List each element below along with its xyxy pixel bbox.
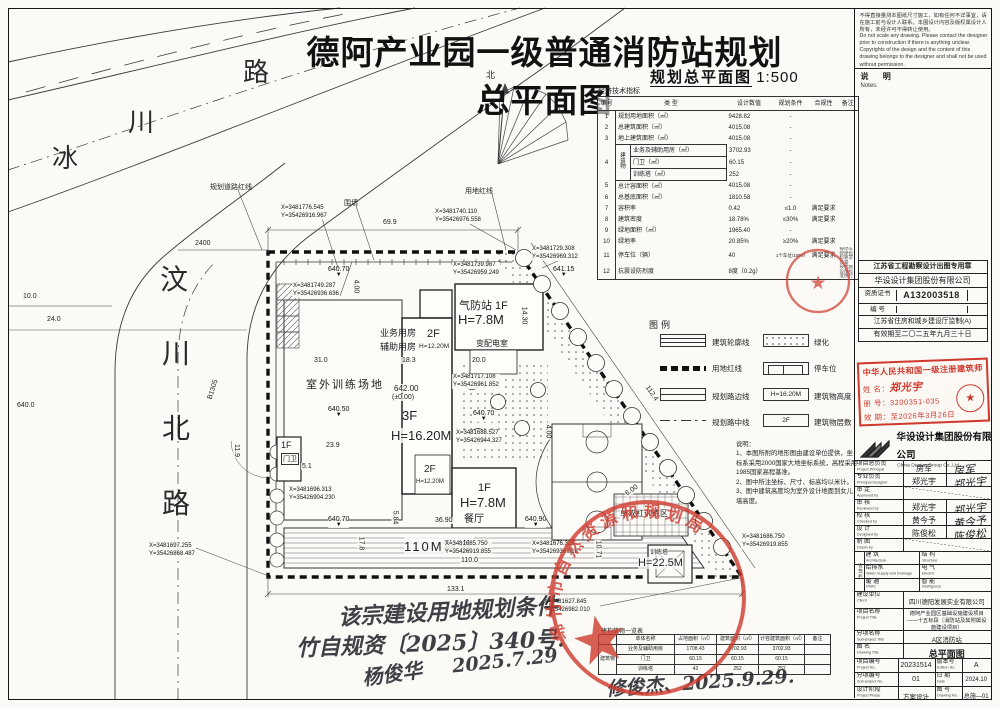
legend-swatch-green <box>763 334 809 347</box>
dim: 110.0 <box>460 557 479 564</box>
countersign-row: 给排水Water Supply and Drainage 电 气Electric <box>855 564 993 577</box>
coordinate-label: X=3481688.527Y=35426944.327 <box>455 430 503 445</box>
road-name-bingchuan: 川 <box>128 102 154 139</box>
company-name-zh: 华设设计集团股份有限公司 <box>897 432 992 461</box>
legend-label: 规划路中线 <box>712 417 750 428</box>
label-road-red-line: 规划道路红线 <box>210 182 252 192</box>
info-row-subproject: 分项名称Sub-project Title A区消防站 <box>855 630 993 643</box>
table-row: 单体名称占地面积（㎡）建筑面积（㎡）计容建筑面积（㎡）备注 <box>599 635 831 645</box>
legend-swatch-height: H=16.20M <box>763 388 809 401</box>
legend-swatch-floors: 2F <box>763 414 809 427</box>
label-tower-height: H=22.5M <box>638 557 683 569</box>
plan-caption: 规划总平面图 1:500 <box>650 66 799 87</box>
plan-notes-title: 说明： <box>736 440 858 449</box>
dim: 24.0 <box>46 316 62 323</box>
seal-line-1: 江苏省工程勘察设计出图专用章 <box>859 261 987 274</box>
arch-seal-icon: ★ <box>955 384 984 413</box>
registered-architect-stamp: 中华人民共和国一级注册建筑师 姓 名：郑光宇 册 号：3200351-035 效… <box>856 358 989 427</box>
label-2f-b-height: H=12.20M <box>416 479 444 485</box>
coordinate-label: X=3481697.255Y=35426868.487 <box>148 543 196 558</box>
coordinate-label: X=3481717.108Y=35426961.852 <box>452 374 500 389</box>
info-row-project: 项目名称Project Title 德阿产业园区基础设施建设项目——十五标段（消… <box>855 608 993 630</box>
legend-swatch-road-edge <box>660 388 706 401</box>
label-dining-height: H=7.8M <box>460 495 506 510</box>
col-header: 类 型 <box>616 97 727 111</box>
label-elev-main: 642.00 <box>394 384 418 393</box>
legend-label: 建筑物高度 <box>814 391 852 402</box>
dim: 4.00 <box>352 279 359 295</box>
legend-label: 规划路边线 <box>712 391 750 402</box>
dim: 23.9 <box>325 442 341 449</box>
label-tower: 训练塔 <box>650 547 668 556</box>
label-gas-station-height: H=7.8M <box>458 312 504 327</box>
elevation-marker: 641.15▼ <box>553 266 574 278</box>
road-name-wenchuan: 汶 <box>160 258 188 298</box>
plan-note-line: 3、图中建筑高度均为室外设计地面到女儿墙高度。 <box>736 487 858 506</box>
meta-row: 设计阶段Project Phase 方案设计 图 号Drawing No. 总施… <box>855 686 993 700</box>
label-2f-a: 2F <box>427 328 440 340</box>
personnel-row: 校 核Checked by 黄今予 黄今予 <box>855 512 993 525</box>
coordinate-label: X=3481740.110Y=35426976.558 <box>434 209 482 224</box>
info-row-drawing-title: 图 名Drawing Title 总平面图 <box>855 643 993 658</box>
table-row: 门卫60.1560.1560.15 <box>599 655 831 665</box>
meta-row: 分项编号Sub-project No. 01 日 期Date 2024.10 <box>855 672 993 686</box>
table-row: 5总计容面积（㎡）4015.08- <box>598 181 859 193</box>
dim: 11.9 <box>233 443 240 458</box>
label-site-red-line: 用地红线 <box>465 186 493 196</box>
personnel-row: 专业负责Principal Designer 郑光宇 郑光宇 <box>855 473 993 486</box>
road-name-wenchuan: 路 <box>162 482 190 522</box>
label-biz-room: 业务用房 <box>380 326 416 339</box>
personnel-row: 制 图Drawn by <box>855 538 993 551</box>
label-aux-room: 辅助用房 <box>380 340 416 353</box>
coordinate-label: X=3481676.326Y=35426936.918 <box>531 541 579 556</box>
legend-label: 用地红线 <box>712 363 742 374</box>
personnel-row: 项目总负责Project Principal 房军 房军 <box>855 460 993 473</box>
plan-notes: 说明： 1、本图所附的地形图由建设单位提供，坐标系采用2000国家大地坐标系统，… <box>736 440 858 506</box>
table-row: 8建筑密度18.78%≤30%满足要求 <box>598 214 859 225</box>
title-block: 不得直接量测本图纸尺寸施工，如有任何不详事宜，请在施工前与设计人联系。本图设计内… <box>854 8 993 698</box>
elevation-marker: 640.50▼ <box>328 406 349 418</box>
label-transformer: 变配电室 <box>476 338 508 349</box>
legend-swatch-road-center <box>660 420 706 421</box>
elevation-marker: 640.70▼ <box>328 516 349 528</box>
dim: 36.90 <box>434 517 454 524</box>
label-gas-station: 气防站 1F <box>459 297 508 313</box>
issue-seal-box: 江苏省工程勘察设计出图专用章 华设设计集团股份有限公司 资质证书A1320035… <box>858 260 988 342</box>
meta-row: 项目编号Project No. 20231514 版本号Edition No. … <box>855 658 993 672</box>
table-row: 11停车位（辆）401个车位/100㎡满足要求按停车配建指标要求设置 <box>598 247 859 265</box>
personnel-row: 设 计Designed by 陈俊松 陈俊松 <box>855 525 993 538</box>
disclaimer-en: Do not scale any drawing. Please contact… <box>855 30 993 69</box>
elevation-marker: 640.70▼ <box>473 410 494 422</box>
label-gate-floors: 1F <box>281 440 292 450</box>
table-row: 7容积率0.42≤1.0满足要求 <box>598 203 859 214</box>
label-3f: 3F <box>402 408 417 423</box>
plan-caption-text: 规划总平面图 <box>650 69 752 87</box>
plan-note-line: 1、本图所附的地形图由建设单位提供，坐标系采用2000国家大地坐标系统，高程采用… <box>736 449 858 477</box>
label-2f-a-height: H=12.20M <box>419 343 449 350</box>
dim: 69.9 <box>382 219 398 226</box>
dim: 5.1 <box>301 463 313 470</box>
legend-label: 建筑物层数 <box>814 417 852 428</box>
label-fence: 围墙 <box>344 198 358 208</box>
dim: 18.3 <box>401 357 417 364</box>
coordinate-label: X=3481739.987Y=35426959.249 <box>452 262 500 277</box>
coordinate-label: X=3481696.313Y=35426904.230 <box>288 487 336 502</box>
table-row: 门卫（㎡）60.15- <box>598 157 859 169</box>
label-2f-b: 2F <box>424 464 436 475</box>
legend-swatch-red-line <box>660 366 706 371</box>
table-row: 建筑物业务及辅助用房1708.433702.933702.93 <box>599 645 831 655</box>
seal-valid: 有效期至二〇二五年九月三十日 <box>859 329 987 341</box>
indicators-title: 经济技术指标 <box>598 86 640 96</box>
table-row: 3地上建筑面积（㎡）4015.08- <box>598 133 859 145</box>
col-header: 编号 <box>598 97 616 111</box>
dim: 17.8 <box>357 536 364 552</box>
coordinate-label: X=3481776.545Y=35426916.967 <box>280 205 328 220</box>
table-row: 1规划用地面积（㎡）9428.82- <box>598 111 859 123</box>
dim: 14.30 <box>520 306 527 326</box>
dim: 20.0 <box>471 357 487 364</box>
table-row: 训练塔（㎡）252- <box>598 169 859 181</box>
label-3f-height: H=16.20M <box>391 428 451 443</box>
col-header: 规划条件 <box>772 97 810 111</box>
countersign-row: 暖 通HVAC 智 能Intelligence <box>855 578 993 591</box>
label-dining-floors: 1F <box>478 482 491 494</box>
dim: 640.0 <box>16 402 36 409</box>
drawing-sheet: 德阿产业园一级普通消防站规划总平面图 规划总平面图 1:500 北 冰 川 路 … <box>0 0 1000 708</box>
notes-en-label: Notes: <box>855 83 993 89</box>
arch-stamp-title: 中华人民共和国一级注册建筑师 <box>861 362 982 379</box>
road-name-wenchuan: 北 <box>162 407 190 447</box>
coordinate-label: X=3481686.750Y=35426919.855 <box>741 534 789 549</box>
legend-label: 建筑轮廓线 <box>712 337 750 348</box>
road-name-bingchuan: 冰 <box>52 138 78 175</box>
legend-label: 停车位 <box>814 363 837 374</box>
seal-no-row: 编 号 <box>859 304 987 316</box>
plan-note-line: 2、图中所注坐标、尺寸、标高均以米计。 <box>736 478 858 487</box>
elevation-marker: 640.70▼ <box>328 266 349 278</box>
label-bars-area: 单双杠训练区 <box>620 508 668 519</box>
legend-title: 图例 <box>649 318 673 331</box>
coordinate-label: X=3481685.750Y=35426919.855 <box>444 541 492 556</box>
notes-label: 说 明 <box>855 71 993 82</box>
dim: 2400 <box>194 240 212 247</box>
dim: 31.0 <box>313 357 329 364</box>
dim: 4.00 <box>544 424 551 440</box>
countersign-row: 建 筑Architecture 结 构Structure <box>855 551 993 564</box>
table-row: 2总建筑面积（㎡）4015.08- <box>598 122 859 133</box>
personnel-row: 审 核Reviewed by 郑光宇 郑光宇 <box>855 499 993 512</box>
coordinate-label: X=3481749.287Y=35426936.636 <box>292 283 340 298</box>
col-header: 设计数值 <box>727 97 772 111</box>
dim: 5.84 <box>391 510 398 526</box>
elevation-marker: 640.90▼ <box>525 516 546 528</box>
dim: 133.1 <box>446 586 466 593</box>
legend-swatch-parking <box>763 362 809 375</box>
table-row: 4建筑物业务及辅助用房（㎡）3702.93- <box>598 145 859 157</box>
legend-swatch-building-outline <box>660 334 706 347</box>
road-name-bingchuan: 路 <box>243 52 269 89</box>
dim: 10.0 <box>22 293 38 300</box>
coordinate-label: X=3481729.308Y=35426969.312 <box>531 246 579 261</box>
plan-caption-scale: 1:500 <box>756 69 799 86</box>
table-row: 12抗震设防烈度8度（0.2g）按抗震设防标准执行 <box>598 265 859 279</box>
personnel-row: 审 定Approved by <box>855 486 993 499</box>
dim: 10.71 <box>594 540 601 560</box>
seal-supervise: 江苏省住房和城乡建设厅监制(A) <box>859 316 987 329</box>
label-outdoor-field: 室外训练场地 <box>306 376 384 392</box>
company-logo-icon <box>859 435 893 461</box>
info-row-client: 建设单位Client 四川德阳发展实业有限公司 <box>855 591 993 608</box>
seal-line-2: 华设设计集团股份有限公司 <box>859 274 987 288</box>
road-name-wenchuan: 川 <box>162 332 190 372</box>
table-row: 9绿地面积（㎡）1965.40- <box>598 225 859 236</box>
indicators-table: 编号 类 型 设计数值 规划条件 合规性 备注 1规划用地面积（㎡）9428.8… <box>597 96 859 280</box>
legend-label: 绿化 <box>814 337 829 348</box>
table-row: 10绿地率20.85%≥20%满足要求 <box>598 236 859 247</box>
label-gatehouse: 门卫 <box>281 453 299 465</box>
col-header: 合规性 <box>810 97 838 111</box>
north-label: 北 <box>486 68 495 81</box>
seal-cert-row: 资质证书A132003518 <box>859 288 987 303</box>
label-elev-zero: (±0.00) <box>392 394 414 401</box>
label-dining: 餐厅 <box>464 510 484 525</box>
table-row: 6总基底面积（㎡）1810.58- <box>598 192 859 203</box>
